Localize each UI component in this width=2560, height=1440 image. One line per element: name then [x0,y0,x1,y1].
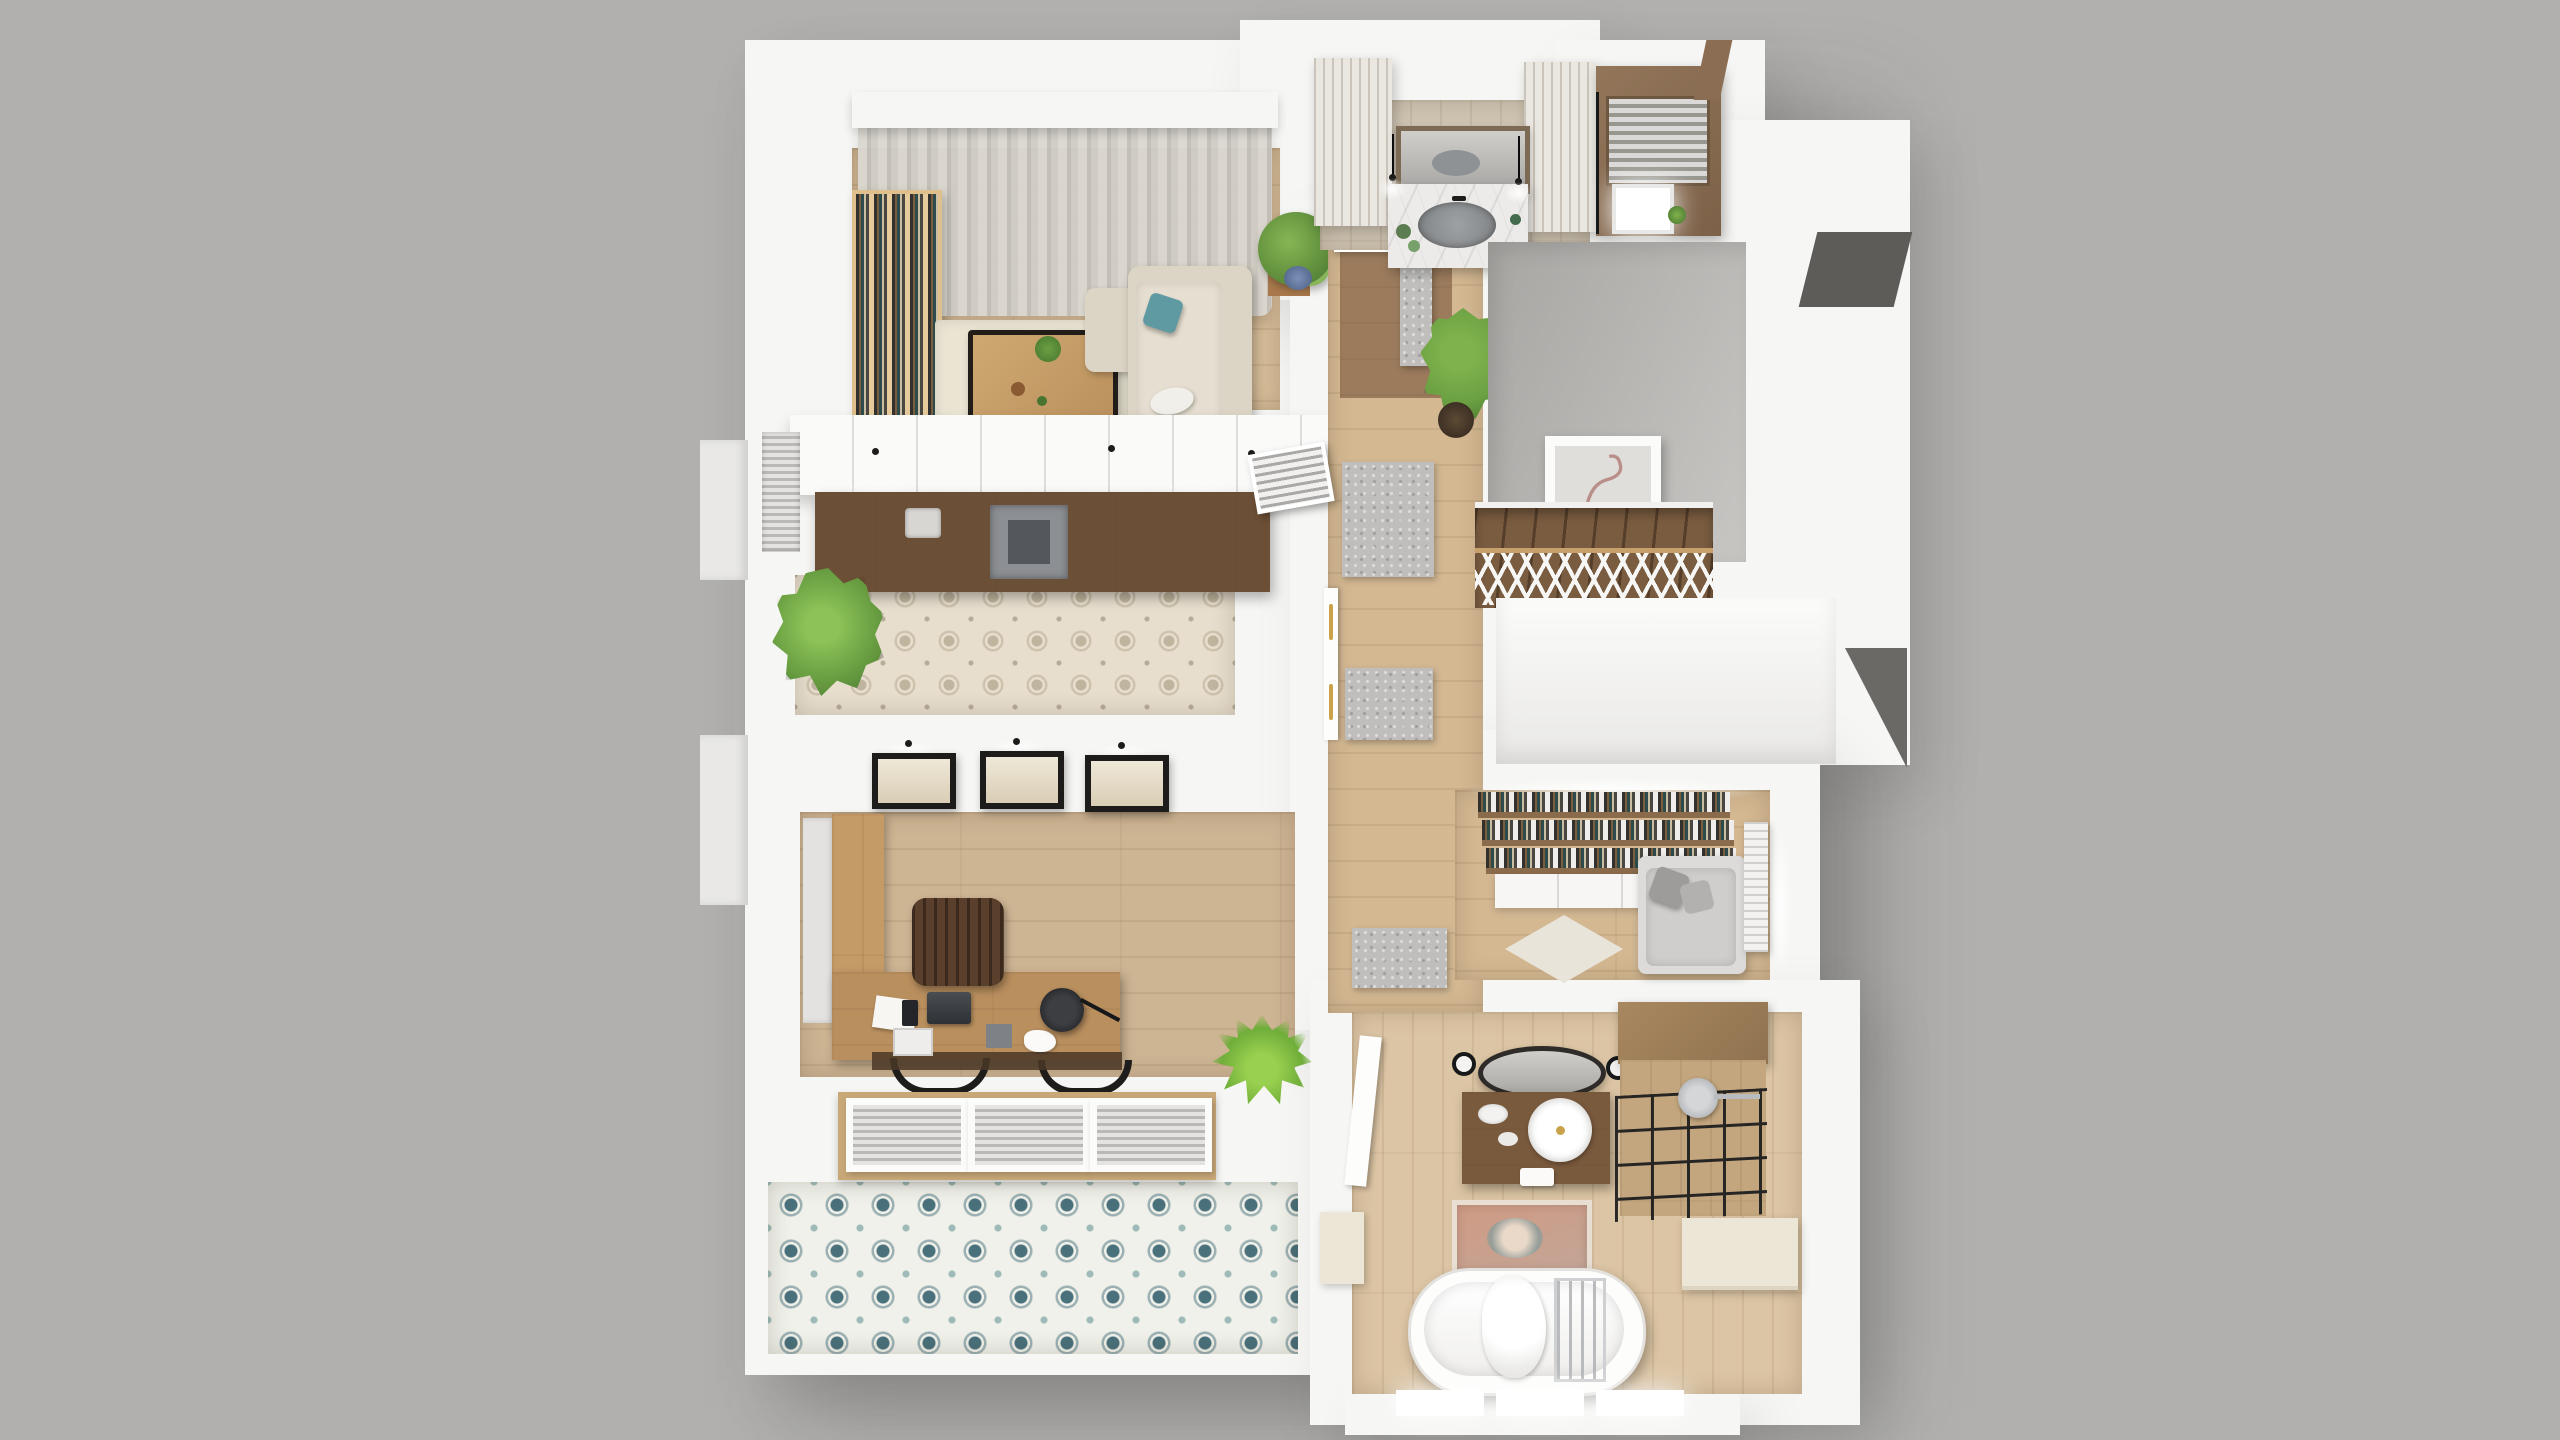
cabinet-downlight-1 [872,448,879,455]
roof-patch-dark [1799,232,1913,307]
library-base-cabinets [1495,874,1645,908]
vanity-towel [1520,1168,1554,1186]
bath-window-1 [1396,1390,1484,1416]
floor-plan-render [0,0,2560,1440]
library-radiator [1744,822,1768,952]
shower-arm [1714,1094,1760,1099]
shower-greenery [1668,206,1686,224]
tub-towel [1482,1276,1546,1378]
shutter-cabinet-left [1314,58,1392,226]
vanity-dish-2 [1498,1132,1518,1146]
shower-skylight [1612,184,1674,234]
cabinet-downlight-2 [1108,445,1115,452]
desk-box-gray [986,1024,1012,1048]
picture-lamp-dot-3 [1118,742,1125,749]
hall-rug-3 [1352,928,1447,988]
shower-black-frame [1596,92,1599,234]
plant-pot-blue [1284,266,1312,290]
green-jar-1 [1396,224,1411,239]
vessel-sink-drain [1556,1126,1565,1135]
desk-box-white [893,1028,933,1056]
hall-rug-2 [1345,668,1433,740]
hall-plant-pot [1438,402,1474,438]
pendant-light-left [1392,134,1394,176]
bath-window-2 [1496,1390,1584,1416]
coffee-table-plant [1035,336,1061,362]
green-jar-3 [1510,214,1521,225]
cooktop-oven [1008,520,1050,564]
crumpled-paper [1024,1030,1056,1052]
vanity-faucet [1452,196,1466,201]
hall-rug-1 [1342,462,1434,577]
sconce-left [1452,1052,1476,1076]
cream-cabinet [1682,1218,1798,1290]
library-window-glow [1770,830,1792,980]
mirror-reflected-sink [1432,150,1480,176]
framed-print-2 [980,751,1064,809]
phone [902,1000,918,1026]
kitchen-window-blinds [762,432,800,552]
library-bookshelf-row-2 [1482,820,1734,846]
living-bookshelf [852,190,942,436]
shower-wood-wall-top [1618,1002,1768,1064]
balcony-tile-floor [768,1182,1298,1354]
pendant-light-right [1518,136,1520,180]
parapet-ledge-lower [700,735,748,905]
office-chair [912,898,1004,986]
framed-print-1 [872,753,956,809]
balcony-window-2 [968,1098,1090,1172]
door-handle-brass-top [1329,604,1333,640]
picture-lamp-dot-1 [905,740,912,747]
balcony-window-1 [846,1098,968,1172]
laptop [927,992,971,1024]
library-bookshelf-row-1 [1478,792,1730,818]
oriental-rug-medallion [1487,1218,1543,1258]
pendant-glow-right [1504,182,1532,204]
cream-block-left [1320,1212,1364,1284]
curtain-rail-box [852,92,1278,128]
desk-lamp-head [1040,988,1084,1032]
pendant-glow-left [1378,178,1406,200]
rain-shower-head [1678,1078,1718,1118]
vanity-sink-oval [1418,202,1496,248]
framed-print-3 [1085,755,1169,812]
vanity-dish-1 [1478,1104,1508,1124]
stair-railing [1475,548,1713,605]
shutter-cabinet-right [1524,62,1596,232]
balcony-window-3 [1090,1098,1212,1172]
green-jar-2 [1408,240,1420,252]
shower-slatted-screen [1606,96,1710,186]
picture-lamp-dot-2 [1013,738,1020,745]
below-stairs-wall-top [1496,598,1836,764]
door-handle-brass-bottom [1329,684,1333,720]
counter-sink [905,508,941,538]
tub-caddy [1554,1278,1606,1382]
parapet-ledge-upper [700,440,748,580]
bath-window-3 [1596,1390,1684,1416]
